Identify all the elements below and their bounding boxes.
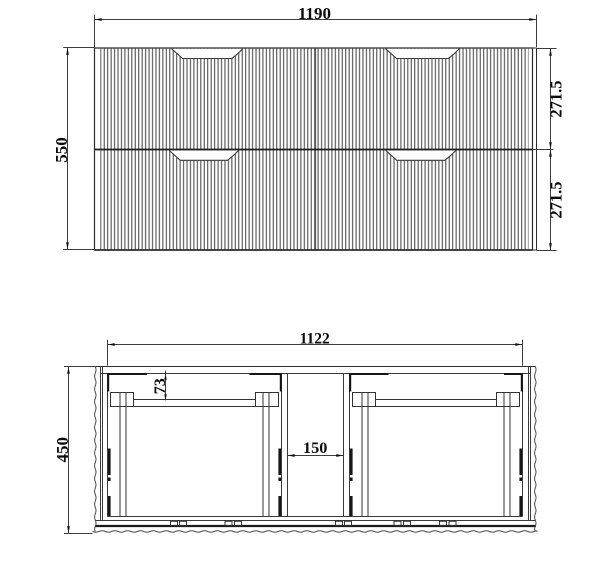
- svg-text:271.5: 271.5: [546, 181, 565, 218]
- svg-text:271.5: 271.5: [546, 80, 565, 117]
- svg-text:450: 450: [53, 437, 72, 463]
- svg-text:1190: 1190: [298, 4, 331, 23]
- svg-text:550: 550: [52, 137, 71, 163]
- svg-text:150: 150: [303, 439, 327, 457]
- svg-text:73: 73: [152, 378, 169, 394]
- svg-text:1122: 1122: [300, 330, 330, 347]
